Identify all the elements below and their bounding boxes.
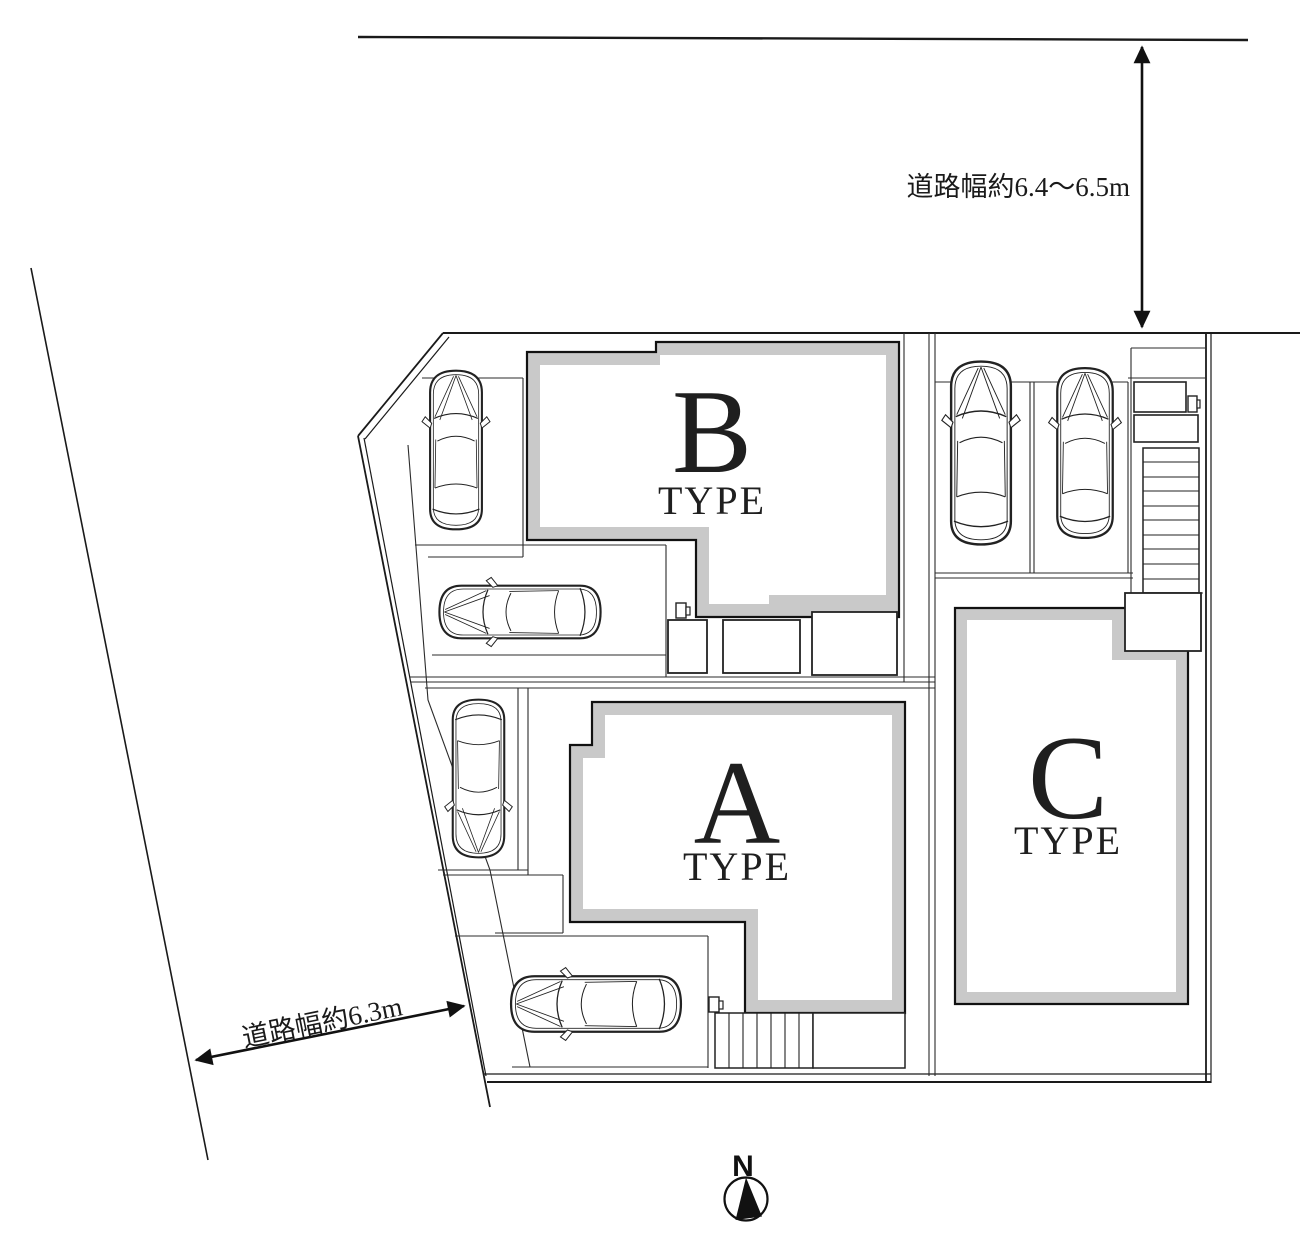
meter-box-icon	[1188, 396, 1200, 412]
car-icon	[942, 362, 1020, 545]
porch-box	[723, 620, 800, 673]
site-plan-drawing: B TYPE A TYPE C TYPE	[0, 0, 1300, 1254]
meter-box-icon	[709, 997, 723, 1012]
stairs-bottom	[715, 1013, 905, 1068]
car-icon	[445, 700, 513, 858]
porch-box	[668, 620, 707, 673]
building-b: B TYPE	[527, 342, 899, 617]
left-road-edge-line	[31, 268, 208, 1160]
entrance-landing	[1125, 593, 1201, 651]
meter-box	[1134, 382, 1186, 412]
building-a-type-label: TYPE	[683, 844, 791, 889]
building-b-type-label: TYPE	[658, 478, 766, 523]
car-icon	[422, 371, 490, 530]
site-plan-page: B TYPE A TYPE C TYPE	[0, 0, 1300, 1254]
car-icon	[1049, 368, 1122, 538]
compass-icon: N	[725, 1150, 768, 1221]
top-road-edge-line	[358, 37, 1248, 40]
car-icon	[439, 577, 600, 646]
building-a: A TYPE	[570, 702, 905, 1013]
road-width-top-annotation: 道路幅約6.4〜6.5m	[906, 47, 1142, 327]
car-icon	[511, 968, 681, 1041]
entrance-landing	[813, 1013, 905, 1068]
building-c: C TYPE	[955, 608, 1188, 1004]
meter-box-icon	[676, 603, 690, 618]
road-width-top-label: 道路幅約6.4〜6.5m	[906, 172, 1130, 202]
road-width-left-annotation: 道路幅約6.3m	[196, 991, 464, 1060]
porch-box	[812, 612, 897, 675]
stairs-right	[1125, 448, 1201, 651]
meter-box	[1134, 415, 1198, 442]
building-c-type-label: TYPE	[1014, 818, 1122, 863]
road-width-left-label: 道路幅約6.3m	[239, 991, 404, 1053]
